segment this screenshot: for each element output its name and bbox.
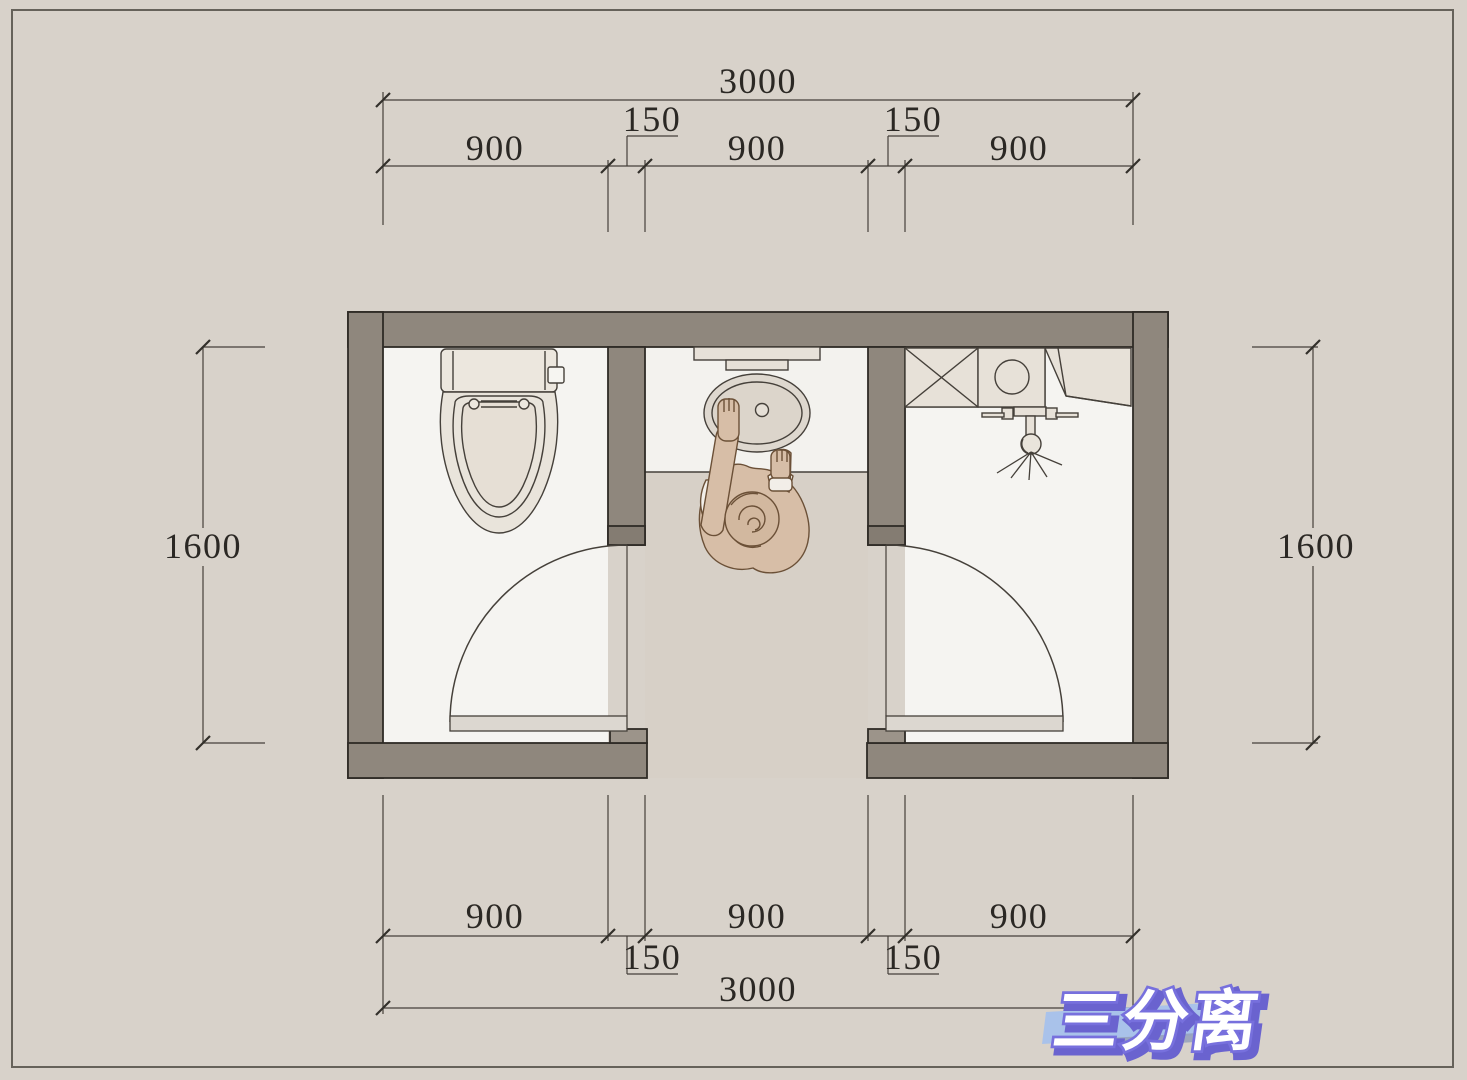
wall-left bbox=[348, 312, 383, 778]
entry-opening bbox=[647, 743, 868, 778]
dim-top-seg1-label: 900 bbox=[466, 128, 525, 168]
wall-top bbox=[348, 312, 1168, 347]
sink-drain bbox=[756, 404, 769, 417]
dim-bottom-seg2-label: 900 bbox=[728, 896, 787, 936]
dim-bottom-seg3-label: 900 bbox=[990, 896, 1049, 936]
toilet-tank bbox=[441, 349, 557, 392]
partition-right-endcap bbox=[868, 526, 905, 545]
washing-machine-drum bbox=[995, 360, 1029, 394]
partition-left-endcap bbox=[608, 526, 645, 545]
shower-bar-right bbox=[1056, 413, 1078, 417]
shower-bracket bbox=[1014, 407, 1046, 416]
dim-top-offset1-label: 150 bbox=[623, 99, 682, 139]
toilet-flush-button bbox=[548, 367, 564, 383]
dim-bottom-seg1-label: 900 bbox=[466, 896, 525, 936]
toilet-hinge-left bbox=[469, 399, 479, 409]
dim-bottom-offset2-label: 150 bbox=[884, 937, 943, 977]
dim-top-offset2-label: 150 bbox=[884, 99, 943, 139]
partition-left bbox=[608, 347, 645, 545]
dim-right-label: 1600 bbox=[1277, 526, 1355, 566]
logo-text: 三分离 bbox=[1048, 985, 1265, 1059]
dim-top-seg3-label: 900 bbox=[990, 128, 1049, 168]
wall-right bbox=[1133, 312, 1168, 778]
shower-bar-left bbox=[982, 413, 1004, 417]
dim-top-seg2-label: 900 bbox=[728, 128, 787, 168]
logo-badge: 三分离 三分离 bbox=[1042, 985, 1272, 1064]
person-cuff bbox=[769, 478, 792, 491]
dim-bottom-offset1-label: 150 bbox=[623, 937, 682, 977]
wall-bottom-right bbox=[867, 743, 1168, 778]
door-leaf-left bbox=[450, 716, 627, 731]
wall-bottom-left bbox=[348, 743, 647, 778]
dim-top-total-label: 3000 bbox=[719, 61, 797, 101]
vanity-shelf bbox=[726, 360, 788, 370]
dim-left-label: 1600 bbox=[164, 526, 242, 566]
floor-plan-page: 3000 900 900 900 150 150 900 900 9 bbox=[0, 0, 1467, 1080]
vanity-backsplash bbox=[694, 347, 820, 360]
toilet-hinge-right bbox=[519, 399, 529, 409]
door-leaf-right bbox=[886, 716, 1063, 731]
partition-right bbox=[868, 347, 905, 545]
dim-bottom-total-label: 3000 bbox=[719, 969, 797, 1009]
floor-plan-canvas: 3000 900 900 900 150 150 900 900 9 bbox=[0, 0, 1467, 1080]
